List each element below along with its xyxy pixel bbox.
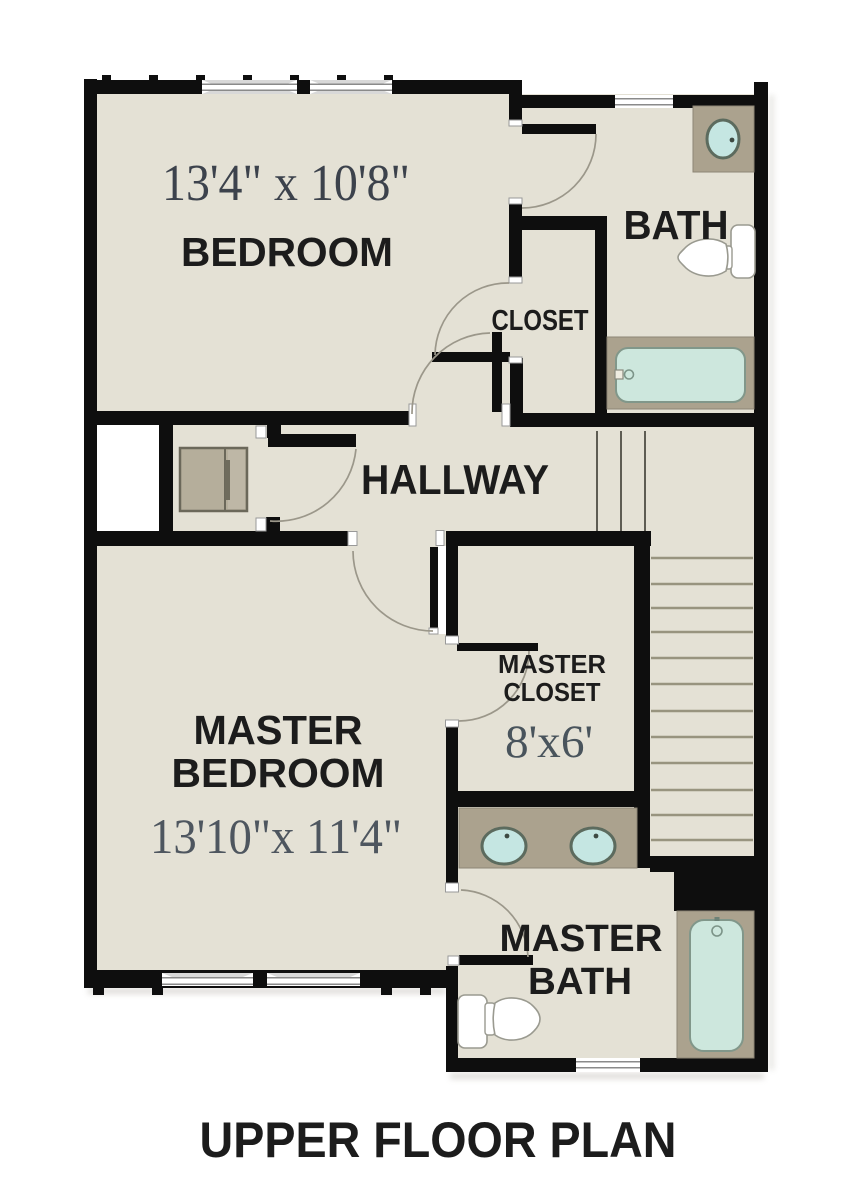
- svg-text:HALLWAY: HALLWAY: [361, 456, 549, 503]
- svg-text:UPPER FLOOR PLAN: UPPER FLOOR PLAN: [200, 1112, 677, 1168]
- svg-text:13'10"x 11'4": 13'10"x 11'4": [150, 808, 402, 864]
- svg-text:8'x6': 8'x6': [505, 716, 593, 768]
- svg-text:BATH: BATH: [624, 202, 729, 248]
- svg-text:BEDROOM: BEDROOM: [172, 750, 385, 796]
- svg-text:MASTER: MASTER: [500, 918, 663, 960]
- svg-text:CLOSET: CLOSET: [492, 305, 589, 337]
- svg-text:MASTER: MASTER: [194, 707, 363, 753]
- svg-text:MASTER: MASTER: [498, 649, 606, 679]
- svg-text:CLOSET: CLOSET: [504, 677, 601, 707]
- svg-text:BATH: BATH: [528, 961, 632, 1003]
- svg-text:BEDROOM: BEDROOM: [181, 229, 393, 275]
- svg-text:13'4" x 10'8": 13'4" x 10'8": [162, 155, 410, 212]
